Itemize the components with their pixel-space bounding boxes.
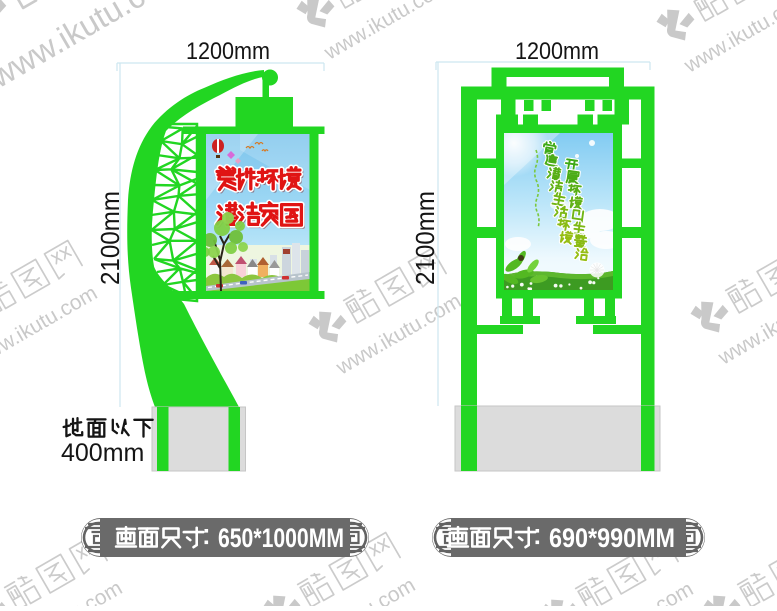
svg-text:www.ikutu.com: www.ikutu.com bbox=[0, 0, 190, 95]
svg-text:www.ikutu.com: www.ikutu.com bbox=[680, 0, 777, 78]
svg-text:650*1000MM: 650*1000MM bbox=[218, 523, 344, 553]
svg-text:2100mm: 2100mm bbox=[95, 191, 125, 285]
svg-text:1200mm: 1200mm bbox=[515, 38, 599, 65]
svg-text:www.ikutu.com: www.ikutu.com bbox=[332, 289, 466, 379]
svg-text:www.ikutu.com: www.ikutu.com bbox=[714, 279, 777, 369]
svg-text:400mm: 400mm bbox=[61, 439, 144, 467]
svg-text:1200mm: 1200mm bbox=[186, 38, 270, 65]
svg-text:www.ikutu.com: www.ikutu.com bbox=[0, 281, 101, 371]
svg-text:www.ikutu.com: www.ikutu.com bbox=[286, 573, 420, 606]
svg-text:www.ikutu.com: www.ikutu.com bbox=[320, 0, 454, 65]
svg-text:690*990MM: 690*990MM bbox=[549, 523, 675, 553]
svg-text:2100mm: 2100mm bbox=[410, 191, 440, 285]
